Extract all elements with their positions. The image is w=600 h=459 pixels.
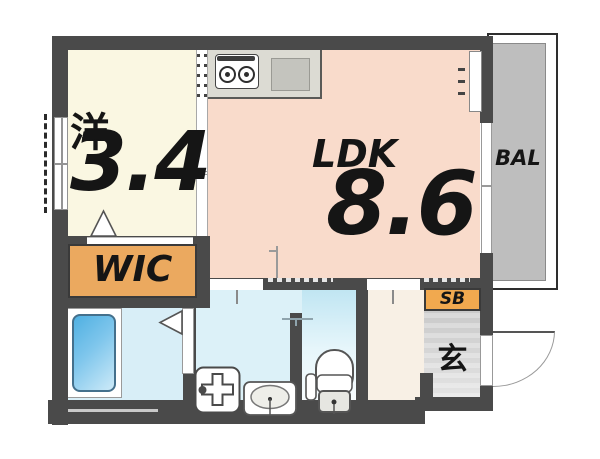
entrance-door-swing-arc: [493, 331, 555, 387]
entrance-door-panel: [480, 335, 493, 386]
floorplan: 洋 3.4 LDK 8.6 WIC BAL SB 玄: [0, 0, 600, 459]
wic-label: WIC: [68, 244, 197, 298]
hanging-wall-dash: [424, 278, 470, 282]
bathroom-window-line: [68, 409, 158, 412]
washroom-door-tick: [236, 290, 238, 304]
kitchen-sink: [271, 58, 310, 91]
toilet-icon: [304, 348, 356, 414]
washing-machine-pan-icon: [194, 366, 241, 414]
wall-left: [52, 36, 68, 425]
fixture-dash: [458, 92, 465, 95]
hallway-door-tick: [392, 290, 394, 304]
balcony-sliding-door: [481, 123, 492, 253]
gas-stove-icon: [215, 54, 259, 89]
open-sliding-panel-foot: [269, 250, 277, 252]
bathtub-icon: [72, 314, 116, 392]
fixture-dash: [458, 80, 465, 83]
wall-top: [52, 36, 493, 50]
washbasin-icon: [243, 381, 297, 416]
balcony-label: BAL: [490, 146, 546, 170]
toilet-door-line: [282, 318, 313, 320]
ldk-size: 8.6: [326, 160, 476, 248]
entrance-label: 玄: [424, 334, 481, 378]
bathroom-door-triangle: [157, 309, 184, 336]
toilet-door-tick: [295, 318, 297, 326]
washroom-doorway: [210, 279, 263, 290]
window-projection-line: [44, 114, 47, 213]
hanging-wall-dash: [268, 278, 333, 282]
fixture-dash: [458, 68, 465, 71]
hallway-floor: [368, 288, 424, 400]
western-room-window: [54, 117, 68, 210]
wall-bathroom-top: [52, 298, 210, 308]
hallway-doorway: [367, 279, 420, 290]
western-room-size: 3.4: [70, 122, 209, 204]
wall-entrance-right-top: [480, 288, 493, 335]
wall-toilet-hallway: [356, 288, 368, 400]
wall-entrance-right-bottom: [480, 386, 493, 411]
shoebox-label: SB: [424, 289, 481, 309]
western-wic-door-triangle: [89, 209, 118, 238]
refrigerator-space: [469, 51, 482, 112]
